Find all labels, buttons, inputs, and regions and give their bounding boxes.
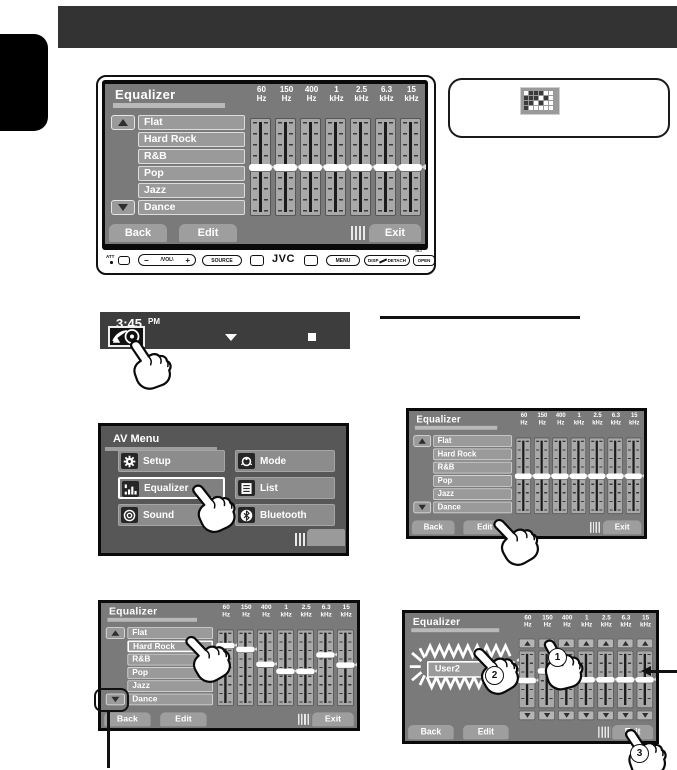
slider-60hz[interactable] (250, 118, 271, 216)
freq-label-60hz: 60Hz (249, 85, 274, 103)
tick-marks (319, 633, 322, 703)
slider-handle[interactable] (515, 473, 532, 478)
freq-label-6-3khz: 6.3kHz (374, 85, 399, 103)
equalizer-screen-user-edit: Equalizer60Hz150Hz400Hz1kHz2.5kHz6.3kHz1… (402, 610, 659, 744)
slider-15khz[interactable] (637, 651, 653, 709)
freq-value: 2.5 (349, 85, 374, 94)
cut-button-15khz[interactable] (637, 711, 653, 721)
slider-400hz[interactable] (300, 118, 321, 216)
freq-value: 60 (515, 412, 533, 419)
av-menu-item-sound[interactable]: Sound (118, 504, 225, 526)
slider-handle[interactable] (625, 473, 642, 478)
preset-scroll-up-button[interactable] (111, 115, 135, 130)
freq-value: 400 (299, 85, 324, 94)
back-button[interactable]: Back (412, 520, 455, 534)
freq-unit: kHz (607, 419, 625, 426)
slider-handle[interactable] (399, 164, 422, 171)
freq-label-150hz: 150Hz (236, 604, 256, 618)
down-triangle-icon (563, 713, 569, 718)
slider-handle[interactable] (296, 669, 314, 674)
freq-unit: kHz (316, 611, 336, 618)
tilt-label: TILT (415, 249, 422, 253)
preset-pop[interactable]: Pop (127, 667, 213, 679)
step-number-3: 3 (630, 744, 649, 763)
tick-marks (328, 633, 331, 703)
slider-handle[interactable] (588, 473, 605, 478)
equalizer-screen-main: Equalizer60Hz150Hz400Hz1kHz2.5kHz6.3kHz1… (105, 84, 425, 244)
up-triangle-icon (118, 119, 128, 126)
manual-page: Equalizer60Hz150Hz400Hz1kHz2.5kHz6.3kHz1… (0, 0, 677, 770)
preset-scroll-up-button[interactable] (106, 627, 125, 639)
disp-label: DISP (368, 258, 379, 263)
down-triangle-icon (419, 505, 426, 510)
slider-150hz[interactable] (534, 438, 549, 515)
freq-value: 1 (324, 85, 349, 94)
slider-callout-line (651, 670, 677, 673)
freq-value: 60 (216, 604, 236, 611)
slider-notch-icon (653, 677, 657, 682)
screen-title: Equalizer (413, 615, 460, 627)
volume-rocker[interactable]: −/VOL\+ (138, 254, 196, 266)
source-button[interactable]: SOURCE (202, 255, 242, 266)
step-number-2: 2 (485, 666, 504, 685)
freq-label-6-3khz: 6.3kHz (616, 614, 636, 628)
freq-unit: Hz (552, 419, 570, 426)
freq-value: 15 (636, 614, 656, 621)
freq-value: 1 (276, 604, 296, 611)
slider-handle[interactable] (256, 662, 274, 667)
slider-track (324, 633, 326, 703)
cut-button-150hz[interactable] (538, 711, 554, 721)
page-header-bar (58, 6, 677, 48)
preset-r-b[interactable]: R&B (127, 654, 213, 666)
sound-icon (121, 507, 138, 523)
back-button[interactable]: Back (104, 712, 150, 726)
edit-button[interactable]: Edit (463, 520, 506, 534)
freq-value: 150 (274, 85, 299, 94)
freq-label-150hz: 150Hz (533, 412, 551, 426)
slider-handle[interactable] (274, 164, 297, 171)
slider-handle[interactable] (236, 647, 254, 652)
up-triangle-icon (524, 641, 530, 646)
slider-2-5khz[interactable] (297, 630, 314, 707)
freq-value: 15 (625, 412, 643, 419)
tick-marks (268, 633, 271, 703)
av-menu-item-equalizer[interactable]: Equalizer (118, 477, 225, 499)
slider-1khz[interactable] (578, 651, 594, 709)
freq-unit: Hz (557, 621, 577, 628)
att-button[interactable] (118, 256, 130, 265)
title-underline (415, 426, 497, 430)
equalizer-screen-edit-prompt: Equalizer60Hz150Hz400Hz1kHz2.5kHz6.3kHz1… (406, 408, 647, 539)
freq-value: 2.5 (597, 614, 617, 621)
slider-handle[interactable] (276, 669, 294, 674)
freq-unit: Hz (274, 94, 299, 103)
freq-value: 150 (236, 604, 256, 611)
up-triangle-icon (642, 641, 648, 646)
disc-source-icon[interactable] (108, 326, 145, 347)
preset-pop[interactable]: Pop (138, 166, 245, 181)
slider-60hz[interactable] (516, 438, 531, 515)
preset-jazz[interactable]: Jazz (138, 183, 245, 198)
slider-1khz[interactable] (325, 118, 346, 216)
slider-notch-icon (354, 662, 358, 667)
slash-icon (379, 258, 387, 263)
slider-track (264, 633, 266, 703)
slider-15khz[interactable] (400, 118, 421, 216)
boost-button-2-5khz[interactable] (597, 639, 613, 649)
freq-unit: kHz (597, 621, 617, 628)
slider-handle[interactable] (324, 164, 347, 171)
exit-button[interactable]: Exit (312, 712, 354, 726)
up-triangle-icon (419, 438, 426, 443)
freq-value: 400 (557, 614, 577, 621)
freq-label-2-5khz: 2.5kHz (349, 85, 374, 103)
slider-handle[interactable] (616, 677, 634, 683)
preset-dance[interactable]: Dance (433, 502, 512, 514)
freq-value: 2.5 (296, 604, 316, 611)
freq-label-15khz: 15kHz (399, 85, 424, 103)
boost-button-60hz[interactable] (519, 639, 535, 649)
av-menu-item-label: List (260, 478, 278, 498)
freq-unit: Hz (256, 611, 276, 618)
up-triangle-icon (544, 641, 550, 646)
freq-value: 60 (518, 614, 538, 621)
jvc-logo: JVC (272, 253, 295, 265)
freq-label-60hz: 60Hz (515, 412, 533, 426)
freq-unit: Hz (216, 611, 236, 618)
slider-6-3khz[interactable] (317, 630, 334, 707)
freq-unit: kHz (625, 419, 643, 426)
preset-r-b[interactable]: R&B (433, 462, 512, 474)
att-indicator-dot (110, 261, 113, 264)
slider-handle[interactable] (607, 473, 624, 478)
freq-value: 15 (336, 604, 356, 611)
slider-handle[interactable] (557, 677, 575, 683)
preset-flat[interactable]: Flat (433, 435, 512, 447)
down-triangle-icon (524, 713, 530, 718)
freq-label-60hz: 60Hz (216, 604, 236, 618)
slider-handle[interactable] (577, 677, 595, 683)
clock-ampm: PM (148, 317, 160, 326)
freq-value: 6.3 (607, 412, 625, 419)
slider-400hz[interactable] (257, 630, 274, 707)
up-triangle-icon (622, 641, 628, 646)
freq-unit: kHz (616, 621, 636, 628)
open-button[interactable]: OPEN (413, 255, 435, 266)
up-triangle-icon (602, 641, 608, 646)
av-menu-item-setup[interactable]: Setup (118, 450, 225, 472)
freq-unit: kHz (336, 611, 356, 618)
note-callout-box (448, 78, 670, 138)
signal-stripes-icon (295, 533, 307, 546)
freq-value: 400 (552, 412, 570, 419)
down-triangle-icon (622, 713, 628, 718)
detach-label: DETACH (388, 258, 406, 263)
preset-scroll-up-button[interactable] (413, 435, 431, 447)
freq-label-1khz: 1kHz (577, 614, 597, 628)
title-underline (411, 628, 499, 632)
tick-marks (248, 633, 251, 703)
cut-button-60hz[interactable] (519, 711, 535, 721)
freq-value: 6.3 (616, 614, 636, 621)
freq-label-2-5khz: 2.5kHz (588, 412, 606, 426)
freq-label-400hz: 400Hz (256, 604, 276, 618)
slider-track (244, 633, 246, 703)
freq-unit: Hz (249, 94, 274, 103)
section-divider (380, 316, 580, 319)
freq-label-6-3khz: 6.3kHz (607, 412, 625, 426)
edit-button[interactable]: Edit (160, 712, 206, 726)
volume-label: /VOL\ (160, 257, 173, 263)
av-menu-item-label: Mode (260, 451, 286, 471)
up-triangle-icon (111, 630, 119, 635)
slider-handle[interactable] (570, 473, 587, 478)
signal-stripes-icon (598, 727, 611, 738)
preset-jazz[interactable]: Jazz (433, 488, 512, 500)
screen-title: Equalizer (115, 87, 176, 102)
slider-2-5khz[interactable] (589, 438, 604, 515)
volume-minus: − (144, 256, 149, 265)
boost-button-150hz[interactable] (538, 639, 554, 649)
freq-unit: kHz (570, 419, 588, 426)
preset-r-b[interactable]: R&B (138, 149, 245, 164)
chevron-down-icon[interactable] (225, 334, 237, 341)
cut-button-6-3khz[interactable] (617, 711, 633, 721)
freq-value: 6.3 (374, 85, 399, 94)
down-arrow-callout-ring (94, 688, 129, 712)
slider-handle[interactable] (216, 643, 234, 648)
freq-unit: Hz (515, 419, 533, 426)
chapter-tab (0, 34, 48, 131)
slider-150hz[interactable] (275, 118, 296, 216)
cut-button-400hz[interactable] (558, 711, 574, 721)
slider-handle[interactable] (518, 678, 536, 684)
freq-unit: kHz (577, 621, 597, 628)
title-underline (107, 618, 197, 622)
preset-flat[interactable]: Flat (127, 627, 213, 639)
preset-jazz[interactable]: Jazz (127, 680, 213, 692)
freq-unit: kHz (399, 94, 424, 103)
list-icon (238, 480, 255, 496)
preset-dance[interactable]: Dance (127, 694, 213, 706)
slider-handle[interactable] (533, 473, 550, 478)
freq-value: 1 (570, 412, 588, 419)
boost-button-400hz[interactable] (558, 639, 574, 649)
slider-15khz[interactable] (337, 630, 354, 707)
edit-button[interactable]: Edit (463, 725, 509, 739)
down-triangle-icon (602, 713, 608, 718)
freq-unit: Hz (533, 419, 551, 426)
av-menu-item-mode[interactable]: Mode (235, 450, 335, 472)
preset-pop[interactable]: Pop (433, 475, 512, 487)
slider-handle[interactable] (552, 473, 569, 478)
slider-6-3khz[interactable] (617, 651, 633, 709)
slider-notch-icon (641, 473, 645, 478)
slider-2-5khz[interactable] (350, 118, 371, 216)
freq-unit: kHz (296, 611, 316, 618)
freq-unit: kHz (276, 611, 296, 618)
preset-hard-rock[interactable]: Hard Rock (138, 132, 245, 147)
freq-label-400hz: 400Hz (552, 412, 570, 426)
freq-value: 150 (538, 614, 558, 621)
freq-label-15khz: 15kHz (636, 614, 656, 628)
freq-label-2-5khz: 2.5kHz (597, 614, 617, 628)
freq-unit: kHz (636, 621, 656, 628)
freq-label-1khz: 1kHz (570, 412, 588, 426)
freq-label-15khz: 15kHz (625, 412, 643, 426)
freq-label-1khz: 1kHz (324, 85, 349, 103)
freq-value: 400 (256, 604, 276, 611)
freq-value: 6.3 (316, 604, 336, 611)
slider-400hz[interactable] (552, 438, 567, 515)
freq-label-6-3khz: 6.3kHz (316, 604, 336, 618)
slider-handle[interactable] (299, 164, 322, 171)
att-label: ATT (106, 254, 114, 259)
av-menu-item-label: Sound (143, 505, 174, 525)
av-menu-title: AV Menu (113, 433, 159, 445)
down-triangle-icon (583, 713, 589, 718)
freq-value: 150 (533, 412, 551, 419)
control-panel: ATT−/VOL\+SOURCEJVCMENUDISPDETACHOPENTIL… (104, 252, 426, 270)
av-menu-screen: AV MenuSetupModeEqualizerListSoundBlueto… (98, 423, 349, 556)
freq-unit: kHz (349, 94, 374, 103)
signal-stripes-icon (298, 714, 311, 725)
boost-button-15khz[interactable] (637, 639, 653, 649)
edit-button[interactable]: Edit (179, 224, 237, 242)
slider-track (546, 654, 548, 705)
slider-2-5khz[interactable] (597, 651, 613, 709)
boost-button-1khz[interactable] (578, 639, 594, 649)
screen-title: Equalizer (416, 413, 460, 425)
up-triangle-icon (583, 641, 589, 646)
slider-handle[interactable] (349, 164, 372, 171)
freq-label-60hz: 60Hz (518, 614, 538, 628)
slider-handle[interactable] (597, 677, 615, 683)
freq-unit: Hz (236, 611, 256, 618)
preset-hard-rock[interactable]: Hard Rock (433, 448, 512, 460)
equalizer-icon (122, 481, 139, 497)
title-underline (113, 103, 225, 108)
slider-handle[interactable] (636, 677, 654, 683)
up-triangle-icon (563, 641, 569, 646)
exit-button[interactable]: Exit (603, 520, 641, 534)
freq-label-400hz: 400Hz (557, 614, 577, 628)
down-triangle-icon (544, 713, 550, 718)
mode-dial-icon (238, 453, 255, 469)
slider-handle[interactable] (249, 164, 272, 171)
av-menu-item-label: Setup (143, 451, 171, 471)
preset-scroll-down-button[interactable] (111, 200, 135, 215)
av-menu-item-label: Bluetooth (260, 505, 307, 525)
slider-6-3khz[interactable] (607, 438, 622, 515)
slider-1khz[interactable] (571, 438, 586, 515)
av-menu-item-list[interactable]: List (235, 477, 335, 499)
step-number-1: 1 (548, 648, 567, 667)
slider-handle[interactable] (538, 668, 556, 674)
stop-icon[interactable] (308, 333, 316, 341)
freq-label-15khz: 15kHz (336, 604, 356, 618)
cut-button-2-5khz[interactable] (597, 711, 613, 721)
freq-value: 15 (399, 85, 424, 94)
preset-hard-rock[interactable]: Hard Rock (127, 640, 213, 652)
freq-label-400hz: 400Hz (299, 85, 324, 103)
tick-marks (259, 633, 262, 703)
volume-plus: + (185, 256, 190, 265)
boost-button-6-3khz[interactable] (617, 639, 633, 649)
down-triangle-icon (642, 713, 648, 718)
freq-value: 2.5 (588, 412, 606, 419)
slider-60hz[interactable] (519, 651, 535, 709)
disp-detach-button[interactable]: DISPDETACH (364, 255, 410, 266)
tick-marks (239, 633, 242, 703)
back-button[interactable]: Back (408, 725, 454, 739)
back-button[interactable]: Back (109, 224, 167, 242)
equalizer-screen-preset-select: Equalizer60Hz150Hz400Hz1kHz2.5kHz6.3kHz1… (98, 600, 360, 731)
freq-label-1khz: 1kHz (276, 604, 296, 618)
slider-handle[interactable] (336, 662, 354, 667)
freq-label-150hz: 150Hz (538, 614, 558, 628)
signal-stripes-icon (590, 522, 602, 533)
menu-button[interactable]: MENU (326, 255, 360, 266)
preset-flat[interactable]: Flat (138, 115, 245, 130)
preset-scroll-down-button[interactable] (413, 502, 431, 514)
signal-stripes-icon (351, 226, 367, 240)
freq-unit: Hz (518, 621, 538, 628)
exit-button[interactable]: Exit (612, 725, 653, 739)
slider-6-3khz[interactable] (375, 118, 396, 216)
preset-key-left[interactable] (250, 255, 264, 266)
source-status-bar: 3:45 PM (100, 312, 350, 349)
freq-unit: kHz (588, 419, 606, 426)
slider-150hz[interactable] (237, 630, 254, 707)
freq-value: 60 (249, 85, 274, 94)
cut-button-1khz[interactable] (578, 711, 594, 721)
freq-unit: Hz (299, 94, 324, 103)
slider-1khz[interactable] (277, 630, 294, 707)
screen-title: Equalizer (109, 605, 157, 617)
preset-key-right[interactable] (304, 255, 318, 266)
freq-unit: kHz (324, 94, 349, 103)
freq-value: 1 (577, 614, 597, 621)
av-menu-item-bluetooth[interactable]: Bluetooth (235, 504, 335, 526)
freq-unit: kHz (374, 94, 399, 103)
bluetooth-icon (238, 507, 255, 523)
callout-leader-line (107, 712, 110, 768)
exit-button[interactable]: Exit (369, 224, 421, 242)
tick-marks (541, 654, 544, 705)
equalizer-grid-icon (520, 87, 560, 115)
status-tab (307, 529, 345, 546)
slider-handle[interactable] (316, 652, 334, 657)
freq-label-150hz: 150Hz (274, 85, 299, 103)
freq-label-2-5khz: 2.5kHz (296, 604, 316, 618)
freq-unit: Hz (538, 621, 558, 628)
slider-15khz[interactable] (626, 438, 641, 515)
slider-handle[interactable] (374, 164, 397, 171)
av-menu-item-label: Equalizer (144, 479, 188, 497)
slider-60hz[interactable] (217, 630, 234, 707)
gear-icon (121, 453, 138, 469)
slider-notch-icon (421, 164, 426, 170)
down-triangle-icon (118, 204, 128, 211)
slider-callout-arrow (641, 666, 651, 676)
preset-dance[interactable]: Dance (138, 200, 245, 215)
